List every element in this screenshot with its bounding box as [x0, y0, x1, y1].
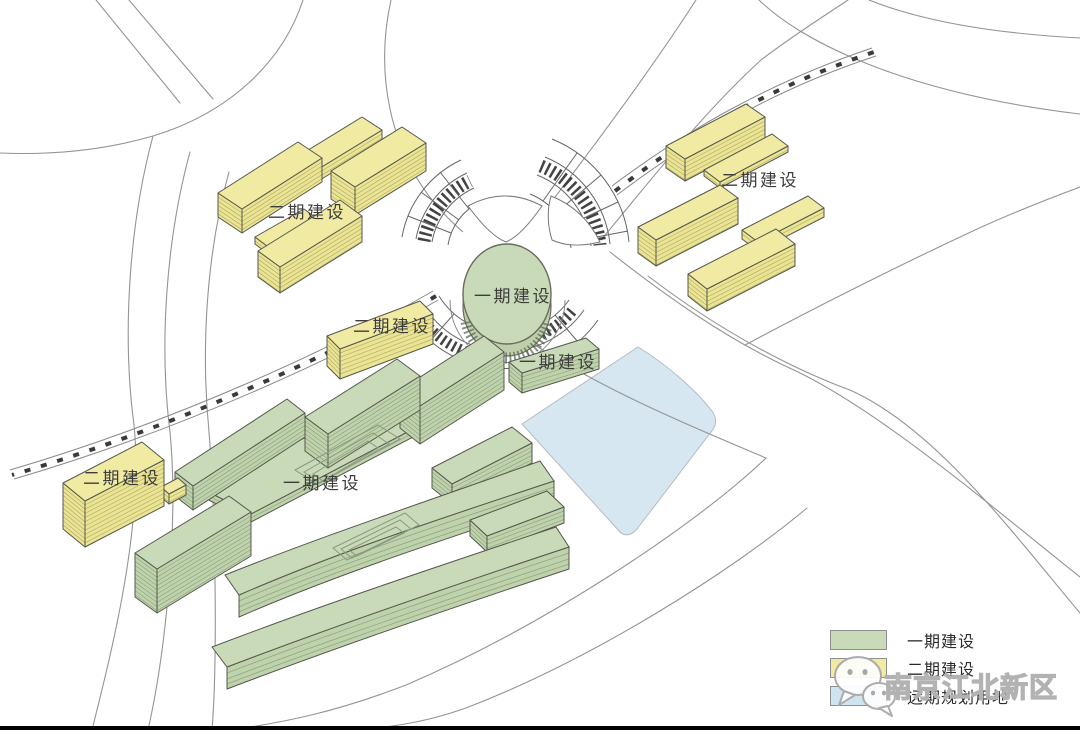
building-phase2-tr-c	[638, 185, 738, 266]
buildings-layer	[63, 104, 824, 689]
legend-label-phase2: 二期建设	[907, 656, 975, 680]
label-phase1-pavilion: 一期建设	[474, 287, 552, 306]
building-phase2-left	[63, 442, 164, 547]
legend-swatch-phase1	[830, 630, 887, 650]
legend: 一期建设 二期建设 远期规划用地	[830, 626, 1080, 710]
legend-item-phase1: 一期建设	[830, 626, 1080, 654]
road-topleft-stub-1	[96, 0, 180, 103]
building-phase2-middle	[327, 301, 433, 379]
road-se-right-edge-2	[648, 276, 1080, 613]
legend-label-future: 远期规划用地	[907, 684, 1009, 708]
label-phase2-middle: 二期建设	[353, 317, 431, 336]
label-phase1-smallbar: 一期建设	[519, 353, 597, 372]
road-ne-west-edge	[549, 0, 696, 205]
label-phase2-left: 二期建设	[83, 469, 161, 488]
road-topleft-stub-2	[129, 0, 213, 99]
label-phase1-complex: 一期建设	[283, 474, 361, 493]
legend-swatch-future	[830, 686, 887, 706]
label-phase2-topright: 二期建设	[721, 171, 799, 190]
road-left-edge-2	[148, 152, 190, 730]
site-phasing-plan: 二期建设 二期建设 二期建设 一期建设 一期建设 二期建设 一期建设 一期建设 …	[0, 0, 1080, 730]
road-nw-west-edge	[0, 0, 303, 153]
plan-canvas: 二期建设 二期建设 二期建设 一期建设 一期建设 二期建设 一期建设	[0, 0, 1080, 730]
label-phase2-topleft: 二期建设	[268, 203, 346, 222]
bottom-border-bar	[0, 726, 1080, 730]
building-phase1-lower-left	[135, 496, 251, 613]
road-ne-outer	[759, 0, 1080, 114]
road-ne-corner	[869, 0, 1080, 38]
legend-item-phase2: 二期建设	[830, 654, 1080, 682]
legend-item-future: 远期规划用地	[830, 682, 1080, 710]
legend-swatch-phase2	[830, 658, 887, 678]
legend-label-phase1: 一期建设	[907, 628, 975, 652]
